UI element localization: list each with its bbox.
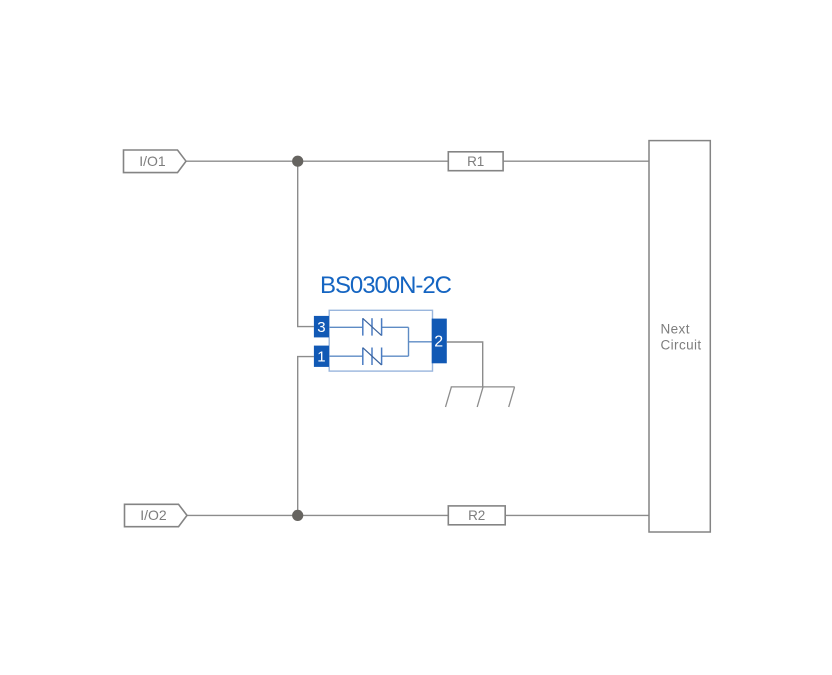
svg-text:R2: R2 — [468, 508, 485, 523]
svg-text:Next: Next — [661, 322, 690, 337]
svg-text:R1: R1 — [467, 154, 484, 169]
svg-text:3: 3 — [317, 319, 325, 336]
svg-text:BS0300N-2C: BS0300N-2C — [320, 272, 452, 299]
svg-text:Circuit: Circuit — [661, 338, 702, 353]
svg-text:I/O2: I/O2 — [140, 507, 167, 523]
svg-text:1: 1 — [317, 349, 325, 366]
svg-text:I/O1: I/O1 — [139, 153, 166, 169]
svg-text:2: 2 — [434, 333, 443, 350]
